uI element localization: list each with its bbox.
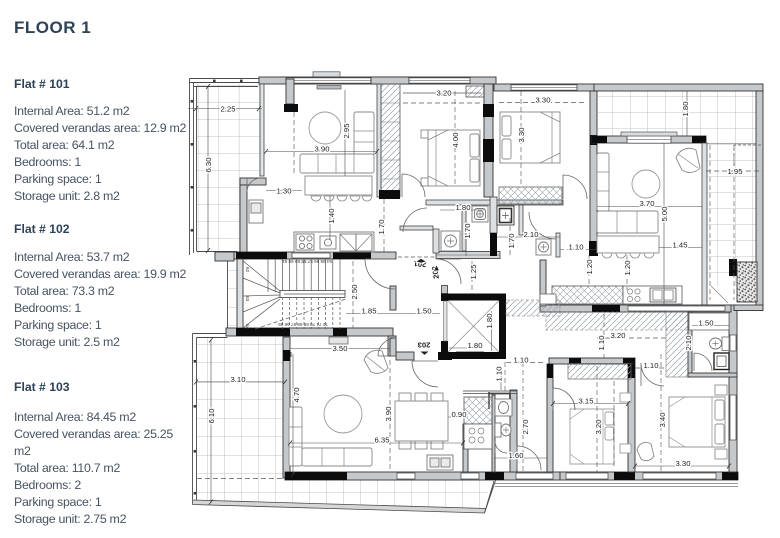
svg-text:3.90: 3.90 bbox=[384, 407, 393, 422]
svg-text:1.80: 1.80 bbox=[485, 314, 494, 329]
svg-text:1.10: 1.10 bbox=[514, 355, 529, 364]
svg-text:2.10: 2.10 bbox=[524, 230, 539, 239]
svg-text:4.70: 4.70 bbox=[292, 388, 301, 403]
svg-text:3.70: 3.70 bbox=[640, 199, 655, 208]
svg-text:64: 64 bbox=[245, 324, 250, 330]
svg-text:2.10: 2.10 bbox=[684, 336, 693, 351]
svg-text:1.50: 1.50 bbox=[417, 306, 432, 315]
svg-text:1.80: 1.80 bbox=[681, 102, 690, 117]
svg-text:1.40: 1.40 bbox=[327, 209, 336, 224]
svg-text:3.20: 3.20 bbox=[594, 420, 603, 435]
svg-text:3.50: 3.50 bbox=[333, 344, 348, 353]
svg-text:0.90: 0.90 bbox=[452, 410, 467, 419]
svg-text:1.45: 1.45 bbox=[673, 240, 688, 249]
svg-text:1.30: 1.30 bbox=[277, 186, 292, 195]
svg-text:1.10: 1.10 bbox=[569, 242, 584, 251]
svg-text:3.30: 3.30 bbox=[517, 128, 526, 143]
svg-text:1.70: 1.70 bbox=[463, 224, 472, 239]
svg-text:72 71 70 69 68 67 66 65: 72 71 70 69 68 67 66 65 bbox=[278, 322, 328, 327]
svg-text:1.20: 1.20 bbox=[585, 260, 594, 275]
svg-text:6.10: 6.10 bbox=[207, 409, 216, 424]
svg-text:6.35: 6.35 bbox=[375, 435, 390, 444]
svg-text:1.50: 1.50 bbox=[699, 318, 714, 327]
svg-text:4.00: 4.00 bbox=[451, 133, 460, 148]
svg-text:1.80: 1.80 bbox=[468, 341, 483, 350]
svg-text:2.95: 2.95 bbox=[342, 124, 351, 139]
svg-text:1.70: 1.70 bbox=[507, 234, 516, 249]
svg-text:1.60: 1.60 bbox=[509, 451, 524, 460]
svg-text:2.70: 2.70 bbox=[521, 420, 530, 435]
svg-text:1.80: 1.80 bbox=[456, 203, 471, 212]
svg-text:3.20: 3.20 bbox=[611, 331, 626, 340]
svg-text:3.30: 3.30 bbox=[536, 95, 551, 104]
svg-text:6.30: 6.30 bbox=[204, 158, 213, 173]
svg-text:1.70: 1.70 bbox=[377, 220, 386, 235]
svg-text:3.30: 3.30 bbox=[676, 459, 691, 468]
svg-text:63: 63 bbox=[245, 296, 250, 302]
svg-text:3.15: 3.15 bbox=[579, 396, 594, 405]
svg-text:2.50: 2.50 bbox=[350, 285, 359, 300]
svg-text:1.25: 1.25 bbox=[469, 265, 478, 280]
svg-text:62: 62 bbox=[245, 267, 250, 273]
svg-text:2.25: 2.25 bbox=[221, 104, 236, 113]
svg-text:54 55 56 57 58 59 60 61: 54 55 56 57 58 59 60 61 bbox=[282, 259, 332, 264]
svg-text:3.40: 3.40 bbox=[658, 413, 667, 428]
svg-text:3.10: 3.10 bbox=[231, 375, 246, 384]
svg-text:5.00: 5.00 bbox=[660, 207, 669, 222]
svg-text:1.10: 1.10 bbox=[597, 336, 606, 351]
svg-text:3.20: 3.20 bbox=[437, 89, 452, 98]
svg-text:1.10: 1.10 bbox=[644, 361, 659, 370]
svg-text:203: 203 bbox=[418, 341, 431, 350]
svg-text:1.85: 1.85 bbox=[362, 306, 377, 315]
svg-text:1.95: 1.95 bbox=[728, 167, 743, 176]
svg-text:1.20: 1.20 bbox=[623, 261, 632, 276]
svg-text:1.10: 1.10 bbox=[495, 367, 504, 382]
svg-text:3.90: 3.90 bbox=[315, 144, 330, 153]
